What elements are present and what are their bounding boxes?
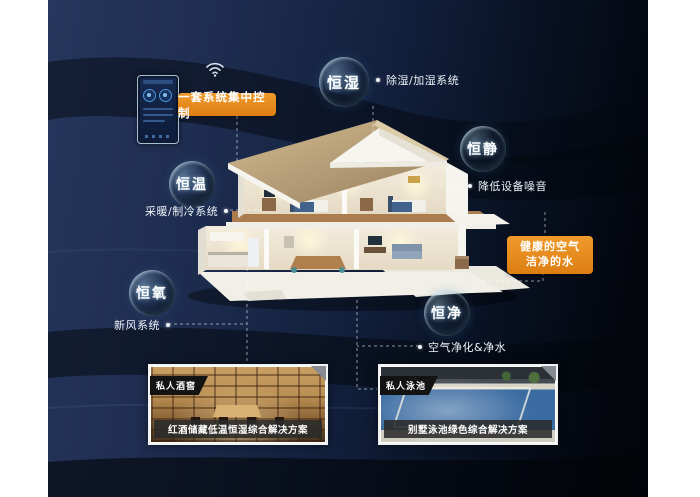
infographic-page: 一套系统集中控制 恒湿 恒静 恒温 恒氧 恒净 除湿/加湿系统 降低设备噪音 采… — [0, 0, 700, 497]
bullet-dot — [224, 209, 228, 213]
note-heating-cooling: 采暖/制冷系统 — [145, 203, 228, 219]
card-caption: 红酒储藏低温恒湿综合解决方案 — [154, 420, 322, 438]
bubble-constant-clean: 恒净 — [424, 290, 470, 336]
note-reduce-noise: 降低设备噪音 — [468, 178, 547, 194]
card-private-wine-cellar: 私人酒窖 红酒储藏低温恒湿综合解决方案 — [148, 364, 328, 445]
card-tag: 私人酒窖 — [150, 376, 208, 395]
bubble-constant-temperature: 恒温 — [169, 161, 215, 207]
bullet-dot — [468, 184, 472, 188]
bullet-dot — [166, 323, 170, 327]
screen-header — [143, 80, 173, 84]
infographic-panel: 一套系统集中控制 恒湿 恒静 恒温 恒氧 恒净 除湿/加湿系统 降低设备噪音 采… — [48, 0, 648, 497]
corner-ribbon — [311, 366, 326, 381]
smart-controller-device — [137, 75, 179, 144]
healthy-air-clean-water-box: 健康的空气 洁净的水 — [507, 236, 593, 274]
card-caption: 别墅泳池绿色综合解决方案 — [384, 420, 552, 438]
bubble-constant-quiet: 恒静 — [460, 126, 506, 172]
dial-icon — [143, 89, 156, 102]
corner-ribbon — [541, 366, 556, 381]
card-tag: 私人泳池 — [380, 376, 438, 395]
note-fresh-air: 新风系统 — [114, 317, 170, 333]
dial-icon — [159, 89, 172, 102]
controller-screen — [140, 78, 176, 141]
bullet-dot — [418, 345, 422, 349]
bubble-constant-humidity: 恒湿 — [319, 57, 369, 107]
bullet-dot — [376, 78, 380, 82]
note-dehumidify-system: 除湿/加湿系统 — [376, 72, 459, 88]
card-private-pool: 私人泳池 别墅泳池绿色综合解决方案 — [378, 364, 558, 445]
wifi-icon — [205, 61, 225, 77]
central-control-label: 一套系统集中控制 — [178, 93, 276, 116]
note-air-water-purify: 空气净化&净水 — [418, 339, 506, 355]
bubble-constant-oxygen: 恒氧 — [129, 270, 175, 316]
